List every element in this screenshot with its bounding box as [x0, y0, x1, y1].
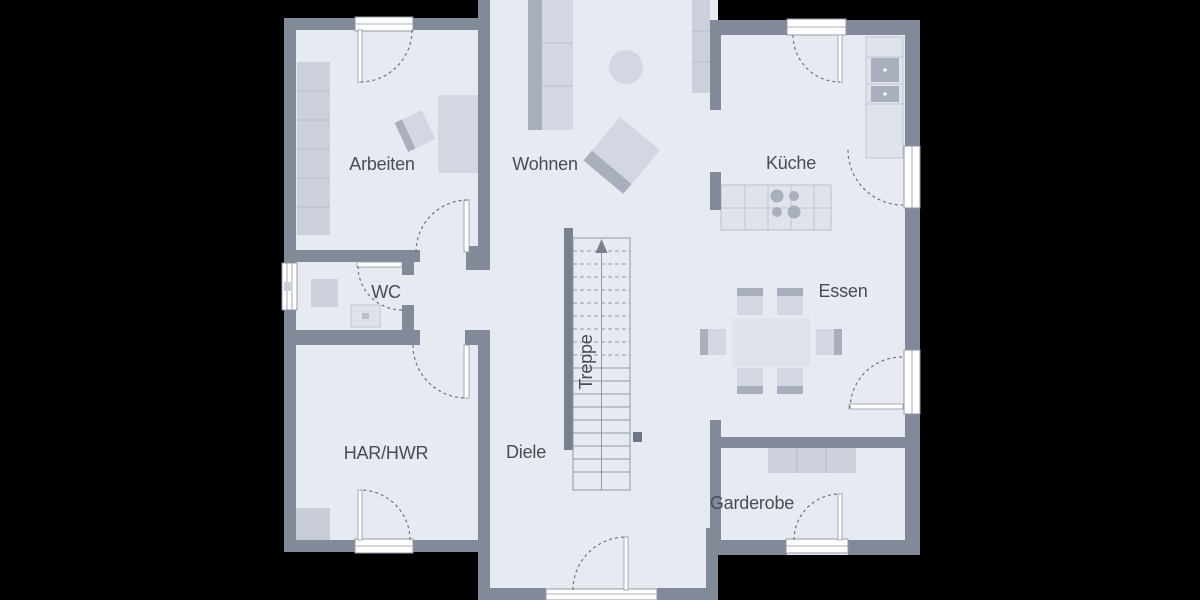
- room-label-essen: Essen: [818, 281, 867, 301]
- room-label-diele: Diele: [506, 442, 546, 462]
- room-label-treppe: Treppe: [576, 334, 596, 389]
- dining-table: [732, 318, 810, 367]
- stair-wall: [564, 228, 573, 450]
- pillar: [633, 432, 642, 442]
- room-label-wc: WC: [371, 282, 401, 302]
- desk: [438, 95, 481, 173]
- utility-niche: [296, 508, 330, 540]
- sofa-seat: [542, 0, 573, 130]
- sink-icon: [311, 279, 338, 307]
- room-label-wohnen: Wohnen: [512, 154, 578, 174]
- sofa-backrest: [528, 0, 542, 130]
- room-label-kueche: Küche: [766, 153, 816, 173]
- window-handle: [284, 282, 291, 291]
- room-label-garderobe: Garderobe: [710, 493, 794, 513]
- room-label-arbeiten: Arbeiten: [349, 154, 414, 174]
- wc-window: [282, 263, 297, 310]
- round-side-table: [609, 50, 643, 84]
- room-label-har-hwr: HAR/HWR: [344, 443, 429, 463]
- sideboard: [692, 0, 710, 93]
- wardrobe-closet: [768, 448, 856, 473]
- wardrobe: [768, 448, 856, 473]
- floor-plan-canvas: Arbeiten Wohnen Küche WC Essen HAR/HWR D…: [0, 0, 1200, 600]
- floor-plan: Arbeiten Wohnen Küche WC Essen HAR/HWR D…: [0, 0, 1200, 600]
